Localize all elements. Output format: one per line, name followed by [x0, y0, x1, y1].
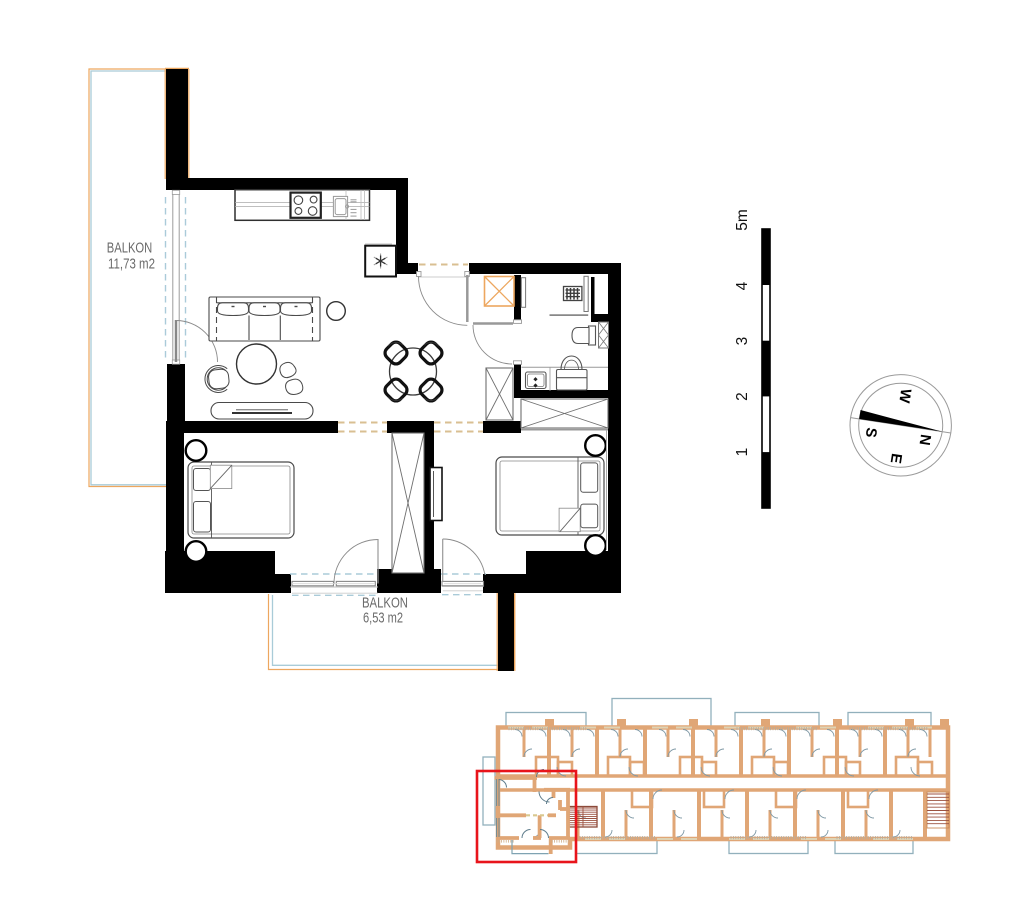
svg-text:4: 4	[734, 281, 751, 290]
svg-text:BALKON: BALKON	[107, 240, 153, 257]
svg-text:1: 1	[734, 448, 751, 457]
svg-text:2: 2	[734, 392, 751, 401]
svg-text:3: 3	[734, 337, 751, 346]
svg-text:11,73 m2: 11,73 m2	[108, 256, 155, 273]
svg-text:5m: 5m	[734, 209, 751, 231]
svg-text:6,53 m2: 6,53 m2	[363, 610, 403, 627]
